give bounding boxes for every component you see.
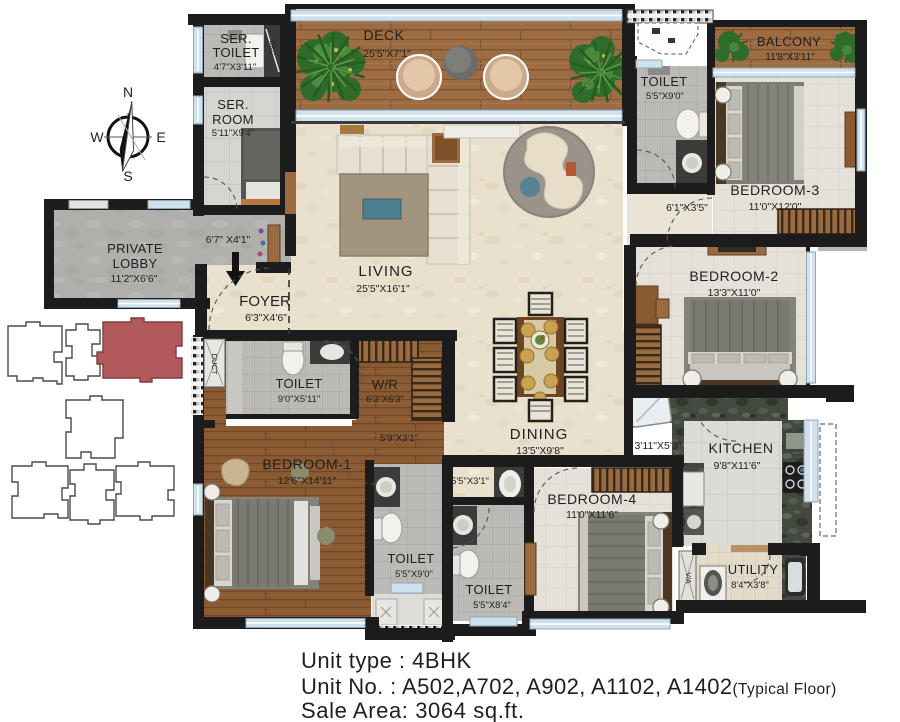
svg-text:TOILET: TOILET [387,551,434,566]
svg-text:DECK: DECK [364,27,405,43]
svg-text:4'7"X3'11": 4'7"X3'11" [214,62,256,73]
svg-text:6'3"X4'6": 6'3"X4'6" [245,312,287,324]
svg-text:LIVING: LIVING [358,263,413,280]
svg-text:KITCHEN: KITCHEN [709,440,774,456]
svg-text:6'1"X3'5": 6'1"X3'5" [666,202,708,214]
svg-text:5'5"X9'0": 5'5"X9'0" [646,91,684,102]
svg-text:ROOM: ROOM [212,112,254,127]
svg-text:5'9"X3'1": 5'9"X3'1" [380,433,418,444]
svg-text:TOILET: TOILET [275,376,322,391]
svg-text:9'0"X5'11": 9'0"X5'11" [278,394,320,405]
svg-text:6'3"X6'3": 6'3"X6'3" [366,394,404,405]
svg-text:6'7" X4'1": 6'7" X4'1" [206,234,251,246]
svg-text:DUCT: DUCT [210,354,219,375]
svg-text:3'11"X5'3": 3'11"X5'3" [635,440,682,452]
svg-text:25'5"X7'1": 25'5"X7'1" [363,48,411,60]
svg-text:11'0"X12'0": 11'0"X12'0" [749,201,802,213]
svg-text:FOYER: FOYER [239,293,291,310]
svg-text:9'8"X11'6": 9'8"X11'6" [714,460,761,472]
svg-text:5'5"X9'0": 5'5"X9'0" [395,569,433,580]
svg-text:5'5"X3'1": 5'5"X3'1" [451,476,489,487]
svg-text:13'3"X11'0": 13'3"X11'0" [708,287,761,299]
svg-text:11'2"X6'6": 11'2"X6'6" [111,273,158,285]
svg-text:N: N [123,84,133,100]
svg-text:S: S [123,168,132,184]
svg-text:DINING: DINING [510,426,569,443]
svg-text:BEDROOM-3: BEDROOM-3 [730,182,819,198]
svg-text:W/R: W/R [372,377,398,392]
svg-text:5'5"X8'4": 5'5"X8'4" [473,600,511,611]
svg-text:11'0"X11'6": 11'0"X11'6" [566,509,618,521]
svg-text:11'8"X3'11": 11'8"X3'11" [765,52,815,63]
svg-text:SER.: SER. [217,97,249,112]
svg-text:13'5"X9'8": 13'5"X9'8" [516,445,564,457]
svg-text:TOILET: TOILET [465,582,512,597]
svg-text:UTILITY: UTILITY [728,562,779,577]
svg-text:25'5"X16'1": 25'5"X16'1" [356,283,410,295]
svg-text:E: E [156,129,165,145]
svg-text:BEDROOM-2: BEDROOM-2 [689,268,778,284]
svg-text:Sale Area: 3064 sq.ft.: Sale Area: 3064 sq.ft. [301,698,525,722]
svg-text:8'4"X3'8": 8'4"X3'8" [731,580,769,591]
svg-text:W: W [90,129,104,145]
svg-text:V/A: V/A [684,572,691,584]
svg-text:PRIVATE: PRIVATE [107,241,163,256]
svg-text:TOILET: TOILET [640,74,687,89]
svg-text:5'11"X9'4": 5'11"X9'4" [212,128,254,139]
svg-text:BEDROOM-1: BEDROOM-1 [262,456,351,472]
svg-text:SER.: SER. [220,31,252,46]
svg-text:BALCONY: BALCONY [757,34,821,49]
svg-text:LOBBY: LOBBY [113,256,158,271]
svg-text:D&C: D&C [268,41,275,56]
svg-text:12'6"X14'11": 12'6"X14'11" [278,475,337,487]
svg-text:TOILET: TOILET [212,45,259,60]
svg-text:BEDROOM-4: BEDROOM-4 [547,491,636,507]
svg-text:Unit type : 4BHK: Unit type : 4BHK [301,648,472,673]
